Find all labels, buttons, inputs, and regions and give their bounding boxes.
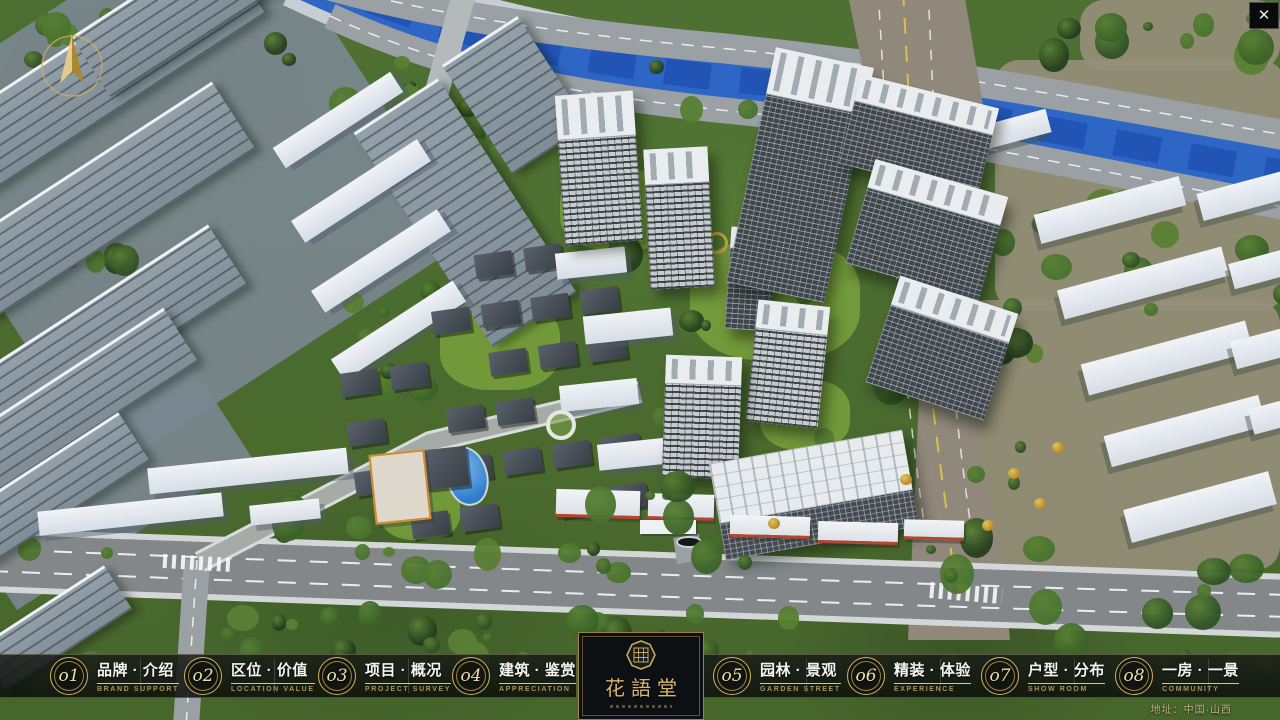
nav-badge-4: o4: [452, 657, 490, 695]
tree: [587, 542, 600, 556]
compass-north-icon: [34, 26, 110, 102]
tree: [286, 619, 299, 630]
warehouse-row-east: [1196, 163, 1280, 221]
courtyard-house: [431, 307, 472, 336]
tower-facade: [746, 329, 827, 429]
courtyard-house: [446, 404, 487, 433]
tree: [691, 539, 722, 574]
tree: [1041, 254, 1072, 280]
nav-label-zh: 园林 · 景观: [760, 659, 837, 680]
residential-tower: [643, 146, 714, 289]
nav-label-en: COMMUNITY: [1162, 686, 1220, 693]
tree: [738, 100, 758, 120]
courtyard-house: [495, 397, 536, 426]
tree: [680, 96, 703, 123]
nav-number: o6: [855, 666, 876, 686]
courtyard-house: [530, 293, 571, 322]
courtyard-house: [340, 369, 381, 398]
masterplan-viewport: ✕ o1 品牌 · 介绍BRAND SUPPORT o2 区位 · 价值LOCA…: [0, 0, 1280, 720]
tree: [221, 627, 238, 643]
tree: [738, 555, 752, 570]
tower-facade: [645, 183, 714, 290]
nav-badge-2: o2: [184, 657, 222, 695]
courtyard-house: [459, 503, 500, 532]
address-text: 地址：中国·山西: [1151, 701, 1232, 716]
logo-seal-icon: [626, 640, 656, 670]
nav-label-zh: 项目 · 概况: [365, 659, 442, 680]
nav-item-brand[interactable]: o1 品牌 · 介绍BRAND SUPPORT: [50, 654, 179, 698]
project-name: 花語堂: [605, 672, 683, 701]
garden-circle: [546, 410, 576, 440]
clubhouse-roof: [422, 446, 470, 490]
nav-badge-8: o8: [1115, 657, 1153, 695]
nav-label-zh: 精装 · 体验: [894, 659, 971, 680]
nav-number: o1: [58, 666, 79, 686]
residential-tower: [746, 300, 830, 429]
tree: [1180, 33, 1194, 49]
nav-underline: [365, 683, 451, 684]
orange-compound: [368, 449, 431, 524]
tree: [686, 604, 704, 624]
nav-label-zh: 户型 · 分布: [1028, 659, 1105, 680]
tree: [1197, 584, 1211, 598]
nav-underline: [1028, 683, 1105, 684]
tree: [282, 53, 297, 65]
tree: [482, 633, 494, 643]
tree: [1273, 284, 1280, 304]
warehouse-row-east: [1123, 471, 1277, 543]
tree: [1039, 38, 1068, 72]
autumn-tree: [900, 474, 912, 485]
nav-item-interior[interactable]: o6 精装 · 体验EXPERIENCE: [847, 654, 971, 698]
nav-label-en: SHOW ROOM: [1028, 686, 1088, 693]
nav-underline: [97, 683, 179, 684]
nav-label-en: GARDEN STREET: [760, 686, 841, 693]
courtyard-house: [347, 418, 388, 447]
courtyard-house: [474, 250, 515, 279]
nav-underline: [1162, 683, 1239, 684]
nav-label-zh: 区位 · 价值: [231, 659, 308, 680]
tree: [227, 605, 259, 631]
nav-label-en: BRAND SUPPORT: [97, 686, 179, 693]
residential-tower: [846, 159, 1008, 301]
nav-number: o4: [460, 666, 481, 686]
nav-number: o2: [192, 666, 213, 686]
tree: [423, 637, 441, 653]
tree: [1095, 13, 1127, 41]
nav-label-zh: 建筑 · 鉴赏: [499, 659, 576, 680]
nav-item-floorplan[interactable]: o7 户型 · 分布SHOW ROOM: [981, 654, 1105, 698]
project-logo-panel[interactable]: 花語堂: [578, 632, 704, 720]
nav-label-en: APPRECIATION: [499, 686, 571, 693]
tree: [1057, 18, 1081, 40]
tree: [701, 320, 711, 331]
tree: [1229, 554, 1264, 582]
tree: [394, 56, 410, 69]
nav-badge-5: o5: [713, 657, 751, 695]
tree: [1029, 589, 1062, 625]
tree: [649, 60, 663, 74]
tree: [679, 310, 705, 332]
shop-canopy: [904, 519, 965, 541]
warehouse-row-southwest: [147, 448, 349, 495]
tree: [967, 466, 985, 483]
nav-item-project[interactable]: o3 项目 · 概况PROJECT SURVEY: [318, 654, 451, 698]
courtyard-house: [502, 447, 543, 476]
tree: [1023, 536, 1055, 562]
tree: [476, 613, 492, 630]
courtyard-house: [552, 440, 593, 469]
nav-item-views[interactable]: o8 一房 · 一景COMMUNITY: [1115, 654, 1239, 698]
warehouse-row-east: [1104, 395, 1267, 467]
tree: [355, 544, 370, 559]
tree: [1238, 29, 1274, 64]
tree: [1193, 13, 1213, 37]
nav-item-location[interactable]: o2 区位 · 价值LOCATION VALUE: [184, 654, 315, 698]
nav-item-architecture[interactable]: o4 建筑 · 鉴赏APPRECIATION: [452, 654, 576, 698]
tree: [1142, 598, 1174, 629]
nav-label-zh: 一房 · 一景: [1162, 659, 1239, 680]
logo-caption-line: [610, 705, 672, 708]
tree: [558, 543, 581, 563]
courtyard-house: [580, 286, 621, 315]
tree: [423, 560, 452, 589]
nav-badge-7: o7: [981, 657, 1019, 695]
nav-underline: [760, 683, 841, 684]
nav-number: o7: [989, 666, 1010, 686]
tower-roof: [643, 146, 709, 186]
nav-underline: [231, 683, 315, 684]
nav-item-garden[interactable]: o5 园林 · 景观GARDEN STREET: [713, 654, 841, 698]
courtyard-house: [389, 362, 430, 391]
tree: [1185, 594, 1220, 630]
residential-tower: [555, 90, 643, 245]
courtyard-house: [480, 300, 521, 329]
tower-facade: [558, 135, 643, 245]
tree: [645, 491, 655, 500]
tower-roof: [665, 355, 742, 387]
nav-underline: [499, 683, 576, 684]
nav-badge-6: o6: [847, 657, 885, 695]
nav-badge-3: o3: [318, 657, 356, 695]
tree: [272, 614, 286, 630]
nav-badge-1: o1: [50, 657, 88, 695]
tree: [1197, 558, 1231, 586]
autumn-tree: [1034, 498, 1046, 509]
tree: [663, 499, 694, 535]
tree: [1143, 22, 1153, 31]
tree: [379, 308, 390, 317]
tree: [926, 545, 936, 555]
shop-canopy: [818, 521, 899, 545]
tower-facade: [726, 94, 864, 303]
tree: [101, 547, 113, 559]
tree: [383, 547, 395, 557]
nav-label-en: LOCATION VALUE: [231, 686, 315, 693]
tree: [358, 601, 382, 628]
tower-roof: [555, 90, 636, 140]
autumn-tree: [982, 520, 994, 531]
nav-number: o3: [326, 666, 347, 686]
tree: [320, 607, 341, 628]
tree: [1144, 303, 1157, 315]
nav-underline: [894, 683, 971, 684]
tree: [956, 583, 967, 592]
tree: [660, 471, 695, 502]
tree: [1063, 634, 1075, 644]
close-button[interactable]: ✕: [1249, 2, 1279, 29]
nav-number: o5: [721, 666, 742, 686]
nav-label-en: PROJECT SURVEY: [365, 686, 451, 693]
autumn-tree: [1008, 468, 1020, 479]
warehouse-row-southwest: [249, 498, 321, 525]
buildings-layer: [0, 0, 1280, 720]
autumn-tree: [1052, 442, 1064, 453]
autumn-tree: [768, 518, 780, 529]
nav-label-zh: 品牌 · 介绍: [97, 659, 174, 680]
nav-label-en: EXPERIENCE: [894, 686, 955, 693]
tree: [778, 606, 799, 629]
tree: [1151, 221, 1179, 248]
tree: [474, 538, 501, 570]
tree: [264, 32, 287, 54]
tree: [1015, 441, 1026, 453]
nav-number: o8: [1123, 666, 1144, 686]
warehouse-row-east: [1081, 321, 1253, 396]
